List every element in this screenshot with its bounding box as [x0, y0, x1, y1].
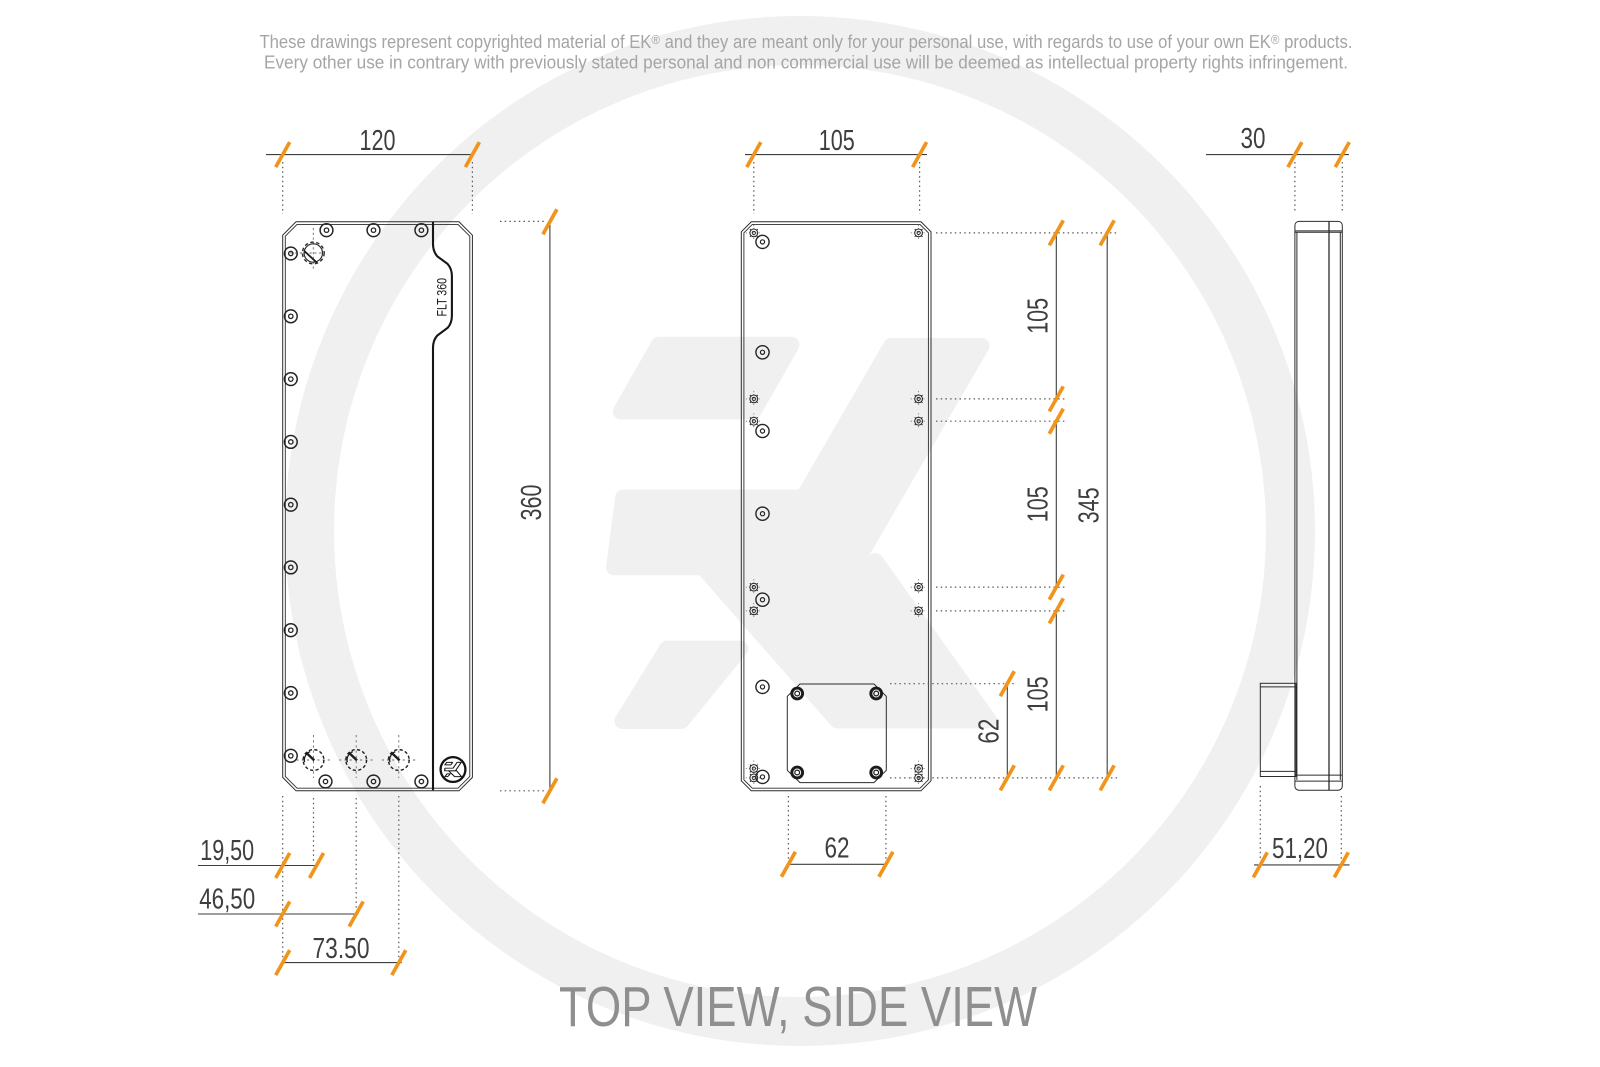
svg-text:105: 105: [819, 125, 855, 157]
svg-text:120: 120: [360, 125, 396, 157]
svg-text:105: 105: [1023, 676, 1055, 712]
svg-text:73.50: 73.50: [313, 933, 370, 965]
svg-text:62: 62: [825, 833, 850, 865]
svg-text:30: 30: [1241, 123, 1266, 155]
svg-text:19,50: 19,50: [200, 835, 254, 867]
svg-text:51,20: 51,20: [1272, 833, 1328, 865]
svg-text:46,50: 46,50: [199, 884, 255, 916]
svg-text:These drawings represent copyr: These drawings represent copyrighted mat…: [260, 32, 1353, 52]
svg-text:TOP VIEW, SIDE VIEW: TOP VIEW, SIDE VIEW: [559, 975, 1037, 1039]
svg-text:360: 360: [516, 485, 548, 521]
svg-text:345: 345: [1074, 487, 1106, 523]
svg-text:105: 105: [1023, 298, 1055, 334]
svg-text:FLT 360: FLT 360: [433, 278, 449, 317]
svg-text:62: 62: [974, 719, 1006, 744]
svg-text:105: 105: [1023, 486, 1055, 522]
svg-text:Every other use in contrary wi: Every other use in contrary with previou…: [264, 53, 1348, 73]
